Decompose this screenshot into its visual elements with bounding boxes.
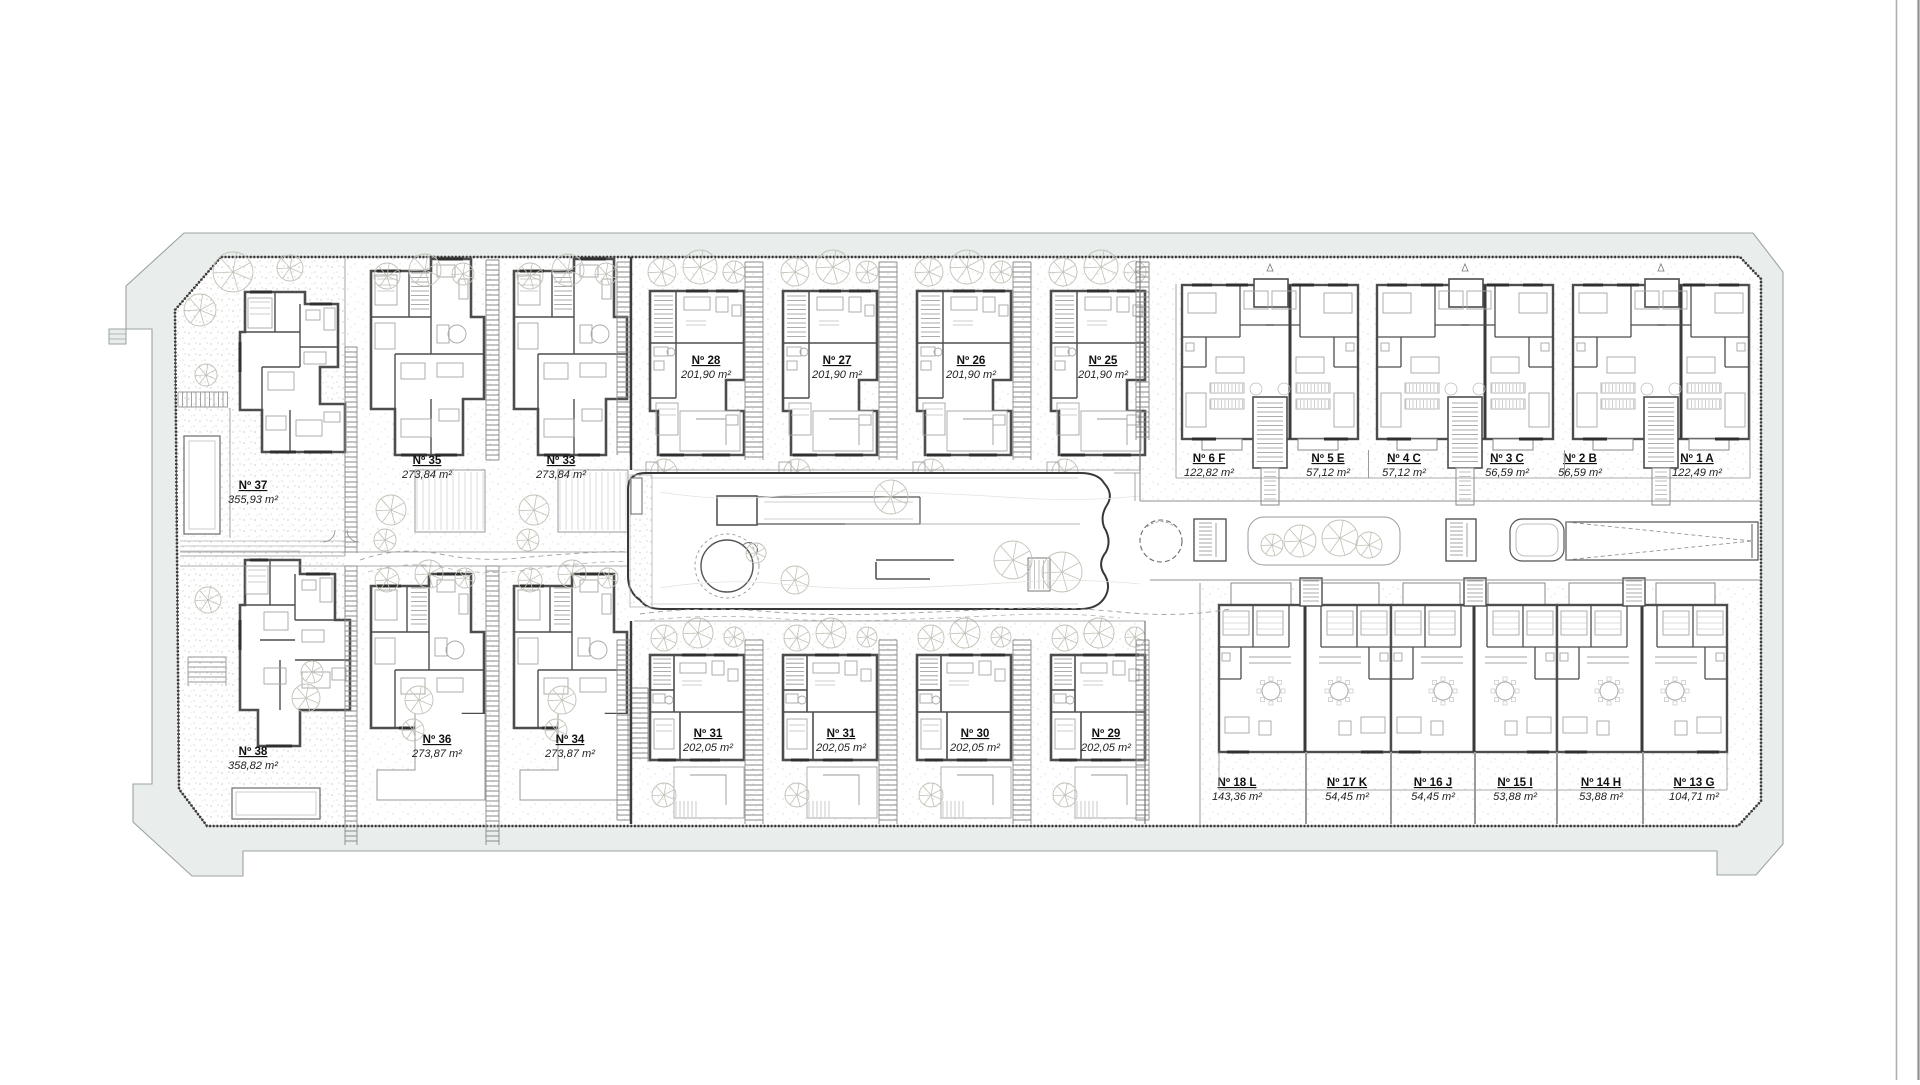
svg-text:Nº 26: Nº 26 (957, 354, 986, 367)
svg-text:202,05 m²: 202,05 m² (682, 742, 734, 754)
svg-text:Nº 35: Nº 35 (413, 454, 442, 467)
svg-text:202,05 m²: 202,05 m² (949, 742, 1001, 754)
svg-text:Nº 16 J: Nº 16 J (1414, 776, 1452, 789)
svg-text:273,84 m²: 273,84 m² (401, 469, 453, 481)
svg-text:Nº 28: Nº 28 (692, 354, 721, 367)
svg-text:Nº 29: Nº 29 (1092, 727, 1121, 740)
svg-text:201,90 m²: 201,90 m² (680, 369, 732, 381)
svg-text:Nº 38: Nº 38 (239, 745, 268, 758)
svg-text:104,71 m²: 104,71 m² (1669, 791, 1720, 803)
svg-text:122,82 m²: 122,82 m² (1184, 467, 1235, 479)
svg-text:Nº 37: Nº 37 (239, 479, 268, 492)
svg-text:Nº 30: Nº 30 (961, 727, 990, 740)
svg-text:53,88 m²: 53,88 m² (1579, 791, 1624, 803)
svg-text:201,90 m²: 201,90 m² (945, 369, 997, 381)
svg-text:Nº 2 B: Nº 2 B (1563, 452, 1597, 465)
svg-text:202,05 m²: 202,05 m² (1080, 742, 1132, 754)
svg-text:Nº 33: Nº 33 (547, 454, 576, 467)
svg-text:273,87 m²: 273,87 m² (544, 748, 596, 760)
svg-text:Nº 31: Nº 31 (827, 727, 856, 740)
svg-text:53,88 m²: 53,88 m² (1493, 791, 1538, 803)
svg-text:Nº 14 H: Nº 14 H (1581, 776, 1621, 789)
svg-text:54,45 m²: 54,45 m² (1411, 791, 1456, 803)
svg-text:Nº 25: Nº 25 (1089, 354, 1118, 367)
svg-text:358,82 m²: 358,82 m² (228, 760, 279, 772)
svg-text:Nº 1 A: Nº 1 A (1680, 452, 1714, 465)
svg-text:Nº 36: Nº 36 (423, 733, 452, 746)
svg-text:Nº 27: Nº 27 (823, 354, 852, 367)
svg-text:Nº 18 L: Nº 18 L (1217, 776, 1256, 789)
svg-text:56,59 m²: 56,59 m² (1485, 467, 1530, 479)
svg-text:54,45 m²: 54,45 m² (1325, 791, 1370, 803)
svg-text:273,84 m²: 273,84 m² (535, 469, 587, 481)
svg-text:Nº 6 F: Nº 6 F (1193, 452, 1226, 465)
svg-text:Nº 4 C: Nº 4 C (1387, 452, 1421, 465)
svg-text:Nº 15 I: Nº 15 I (1497, 776, 1532, 789)
svg-text:57,12 m²: 57,12 m² (1382, 467, 1427, 479)
svg-text:57,12 m²: 57,12 m² (1306, 467, 1351, 479)
svg-text:Nº 17 K: Nº 17 K (1327, 776, 1368, 789)
svg-text:273,87 m²: 273,87 m² (411, 748, 463, 760)
svg-text:Nº 3 C: Nº 3 C (1490, 452, 1524, 465)
svg-text:201,90 m²: 201,90 m² (811, 369, 863, 381)
svg-text:143,36 m²: 143,36 m² (1212, 791, 1263, 803)
svg-text:Nº 13 G: Nº 13 G (1674, 776, 1715, 789)
svg-text:Nº 5 E: Nº 5 E (1311, 452, 1344, 465)
svg-text:122,49 m²: 122,49 m² (1672, 467, 1723, 479)
svg-text:Nº 34: Nº 34 (556, 733, 585, 746)
svg-text:355,93 m²: 355,93 m² (228, 494, 279, 506)
svg-text:201,90 m²: 201,90 m² (1077, 369, 1129, 381)
svg-text:202,05 m²: 202,05 m² (815, 742, 867, 754)
svg-text:Nº 31: Nº 31 (694, 727, 723, 740)
